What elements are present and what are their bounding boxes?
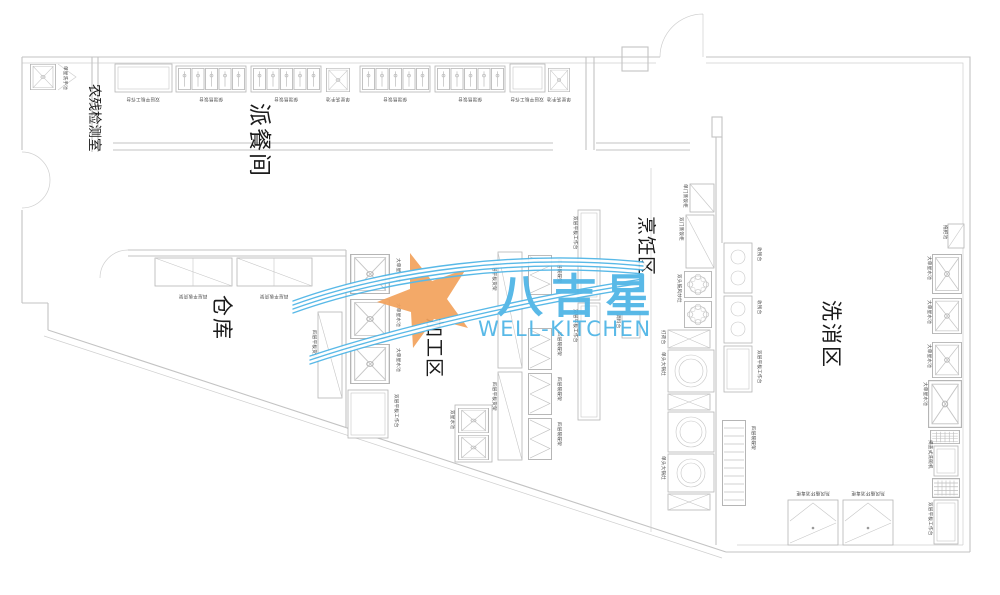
- equip-label: 双层平板工作台: [393, 394, 400, 428]
- equip-label: 大单星水池: [926, 256, 933, 280]
- equip-label: 单星洗手池: [326, 96, 350, 103]
- test-room-equipment: 单星洗手池: [30, 64, 69, 90]
- watermark-logo: 八吉星 WELL-KITCHEN: [293, 253, 659, 364]
- warehouse-equipment: 四层平板货架 四层平板货架 四层平板货架: [155, 258, 342, 398]
- equip-label: 双星水池: [449, 410, 456, 429]
- logo-text-en: WELL-KITCHEN: [478, 317, 652, 341]
- residue-table: [724, 243, 752, 293]
- hand-sink: [548, 68, 569, 91]
- equip-label: 保温售饭台: [458, 96, 482, 103]
- equip-label: 大单星水池: [395, 348, 402, 372]
- equip-label: 单头大锅灶: [660, 456, 667, 480]
- big-sink: [933, 342, 962, 377]
- dishwasher-grille: [933, 479, 960, 498]
- disinfect-cabinet: [788, 500, 838, 545]
- equip-label: 保温售饭台: [274, 96, 298, 103]
- bowl-rack: [529, 373, 552, 414]
- warehouse-door-swing: [100, 250, 128, 278]
- worktable: [724, 346, 752, 392]
- dishwasher: [934, 446, 958, 476]
- bigpot-stove: [668, 412, 714, 452]
- equip-label: 收残台: [756, 300, 763, 315]
- wok-stove: [684, 271, 711, 297]
- room-label-pesticide: 农残检测室: [86, 84, 103, 152]
- big-sink: [929, 381, 962, 428]
- equip-label: 四层碗碟架: [556, 377, 563, 401]
- equip-label: 拖把池: [942, 225, 949, 240]
- equip-label: 双层平板工作台: [126, 96, 160, 103]
- kitchen-floorplan-drawing: 双层平板工作台 保温售饭台 保温售饭台 单星洗手池 保温售饭台 保温售饭台 双层…: [0, 0, 1000, 595]
- equip-label: 单头大锅灶: [660, 352, 667, 376]
- equip-label: 双层平板工作台: [927, 502, 934, 536]
- floorplan-canvas: 双层平板工作台 保温售饭台 保温售饭台 单星洗手池 保温售饭台 保温售饭台 双层…: [0, 0, 1000, 595]
- bowl-rack: [529, 418, 552, 459]
- equip-label: 四层平板货架: [178, 293, 207, 300]
- disinfect-cabinets: 热风循环消毒柜 热风循环消毒柜: [788, 490, 893, 545]
- equip-label: 双头鼓风炒灶: [676, 274, 683, 303]
- equip-label: 双层平板工作台: [756, 350, 763, 384]
- big-sink: [933, 255, 962, 294]
- double-entry-door: [22, 152, 50, 208]
- equip-label: 单门蒸饭柜: [682, 184, 689, 208]
- bowl-rack-trolley: [723, 421, 746, 506]
- equip-label: 收残台: [756, 247, 763, 262]
- room-label-washing: 洗消区: [819, 300, 843, 369]
- equip-label: 双门蒸饭柜: [678, 217, 685, 241]
- big-sink: [351, 345, 390, 384]
- disinfect-cabinet: [843, 500, 893, 545]
- bigpot-stove: [668, 454, 714, 492]
- equip-label: 热风循环消毒柜: [796, 490, 830, 497]
- worktable: [934, 500, 958, 544]
- worktable: [510, 64, 545, 92]
- test-room-sink: [30, 64, 55, 89]
- equip-label: 单星洗手池: [547, 96, 571, 103]
- doors: [22, 14, 703, 278]
- logo-text-cn: 八吉星: [497, 269, 659, 323]
- cooking-equipment: 调料台 单门蒸饭柜 双门蒸饭柜 双头鼓风炒灶 打荷台 单头大锅灶 单头大锅灶: [615, 184, 714, 510]
- equip-label: 双层平板工作台: [510, 96, 544, 103]
- top-door-swing: [660, 14, 703, 57]
- washing-west-equipment: 收残台 收残台 双层平板工作台 四层碗碟架: [723, 243, 764, 506]
- column: [622, 47, 648, 71]
- room-label-warehouse: 仓库: [210, 295, 234, 341]
- equip-label: 单星洗手池: [62, 66, 69, 90]
- equip-label: 热风循环消毒柜: [851, 490, 885, 497]
- room-label-serving: 派餐间: [246, 103, 272, 178]
- dishwasher-grille: [931, 430, 960, 443]
- equip-label: 保温售饭台: [199, 96, 223, 103]
- hand-sink: [326, 68, 349, 91]
- column: [712, 117, 722, 137]
- wok-stove: [684, 301, 711, 327]
- equip-label: 揭盖式洗碗机: [927, 440, 934, 469]
- equip-label: 四层碗碟架: [750, 426, 757, 450]
- equip-label: 打荷台: [660, 330, 667, 345]
- worktable: [115, 64, 172, 92]
- equip-label: 大单星水池: [926, 300, 933, 324]
- big-sink: [351, 300, 390, 339]
- big-sink: [933, 298, 962, 333]
- equip-label: 保温售饭台: [383, 96, 407, 103]
- equip-label: 四层平板货架: [259, 293, 288, 300]
- serving-row-equipment: 双层平板工作台 保温售饭台 保温售饭台 单星洗手池 保温售饭台 保温售饭台 双层…: [115, 64, 571, 103]
- worktable: [348, 390, 388, 438]
- washing-east-equipment: 拖把池 大单星水池 大单星水池 大单星水池 大单星水池 揭盖式洗碗机 双层平板工…: [922, 224, 964, 544]
- equip-label: 四层碗碟架: [556, 422, 563, 446]
- equip-label: 双层平板工作台: [572, 216, 579, 250]
- equip-label: 大单星水池: [922, 382, 929, 406]
- equip-label: 大单星水池: [926, 344, 933, 368]
